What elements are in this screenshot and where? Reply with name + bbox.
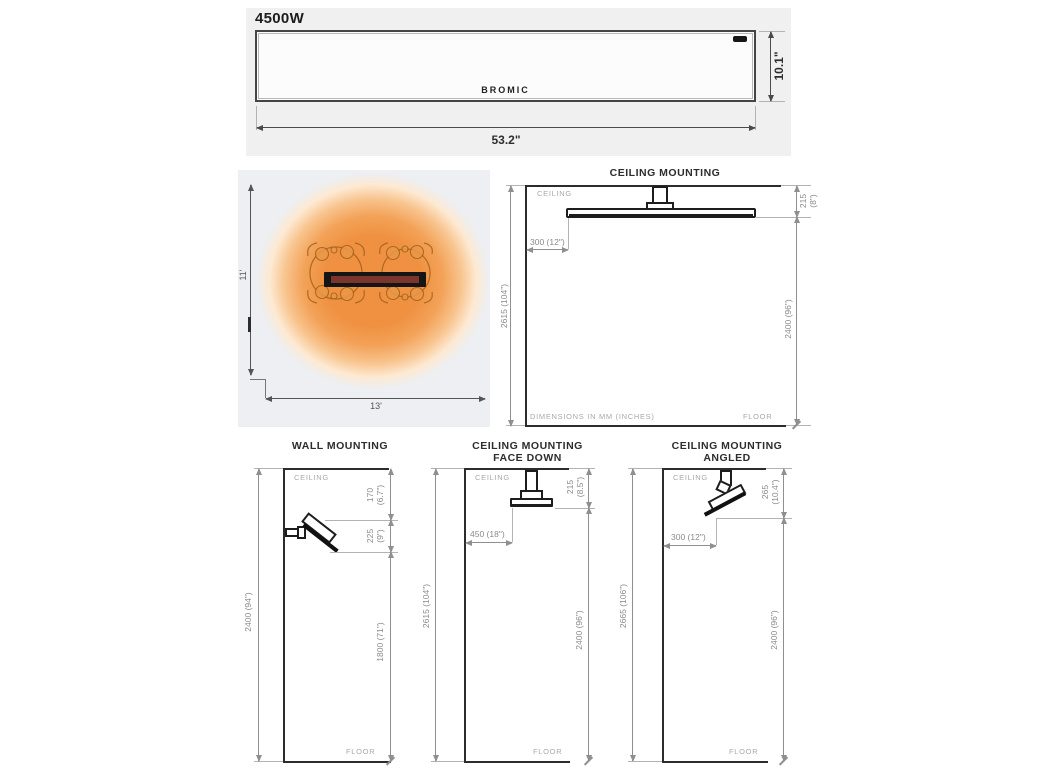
face-down-mounting-diagram: CEILING MOUNTING FACE DOWN CEILING FLOOR…	[425, 440, 630, 778]
floor-label: FLOOR	[346, 747, 375, 756]
total-height-dim	[435, 469, 436, 761]
clearance-label: 1800 (71")	[374, 607, 386, 677]
drop-label: 265 (10.4")	[761, 465, 781, 519]
total-height-label: 2615 (104")	[498, 271, 510, 341]
floor-label: FLOOR	[533, 747, 562, 756]
width-dim-label: 13'	[276, 401, 476, 411]
drop-in: (10.4")	[771, 465, 781, 519]
clearance-dim	[390, 552, 391, 761]
diagram-title-line2: ANGLED	[622, 452, 832, 464]
heater-emitter	[331, 276, 419, 283]
heater-side-view	[566, 208, 756, 218]
depth-dim-line	[250, 185, 251, 375]
drop-label: 215 (8.5")	[566, 462, 586, 512]
floor-label: FLOOR	[743, 412, 772, 421]
total-height-dim	[632, 469, 633, 761]
diagram-title: WALL MOUNTING	[230, 440, 450, 452]
wall-line	[283, 468, 285, 763]
drop-in: (8.5")	[576, 462, 586, 512]
heater-side-view	[510, 498, 553, 507]
drop-in: (9")	[376, 511, 386, 561]
ceiling-label: CEILING	[537, 189, 572, 198]
wall-line	[662, 468, 664, 763]
ceiling-mounting-diagram: CEILING MOUNTING CEILING FLOOR DIMENSION…	[500, 167, 822, 429]
total-height-label: 2400 (94")	[242, 577, 254, 647]
angled-mounting-diagram: CEILING MOUNTING ANGLED CEILING FLOOR 26…	[622, 440, 832, 778]
heat-spread-panel: 11' 13'	[238, 170, 490, 427]
brand-logo: BROMIC	[257, 85, 754, 95]
floor-line	[464, 761, 570, 763]
diagram-title-line1: CEILING MOUNTING	[425, 440, 630, 452]
drop-label: 225 (9")	[366, 511, 386, 561]
width-dim-line	[257, 127, 755, 128]
heater-top-view	[324, 272, 426, 287]
width-dim-label: 53.2"	[246, 133, 766, 147]
heater-face-line	[569, 214, 753, 216]
tick-mark	[248, 317, 251, 332]
top-offset-dim	[390, 469, 391, 520]
step-line	[250, 379, 266, 380]
wall-line	[525, 185, 527, 427]
floor-line	[525, 425, 786, 427]
drop-label: 215 (8")	[799, 176, 819, 226]
depth-dim-label: 11'	[237, 259, 249, 291]
clearance-label: 2400 (96")	[768, 595, 780, 665]
model-label: 4500W	[255, 10, 304, 27]
clearance-dim	[588, 508, 589, 761]
height-dim-label: 10.1"	[773, 31, 785, 101]
ceiling-line	[464, 468, 569, 470]
diagram-title-line1: CEILING MOUNTING	[622, 440, 832, 452]
floor-line	[662, 761, 768, 763]
floor-label: FLOOR	[729, 747, 758, 756]
diagram-title-line2: FACE DOWN	[425, 452, 630, 464]
total-height-label: 2665 (106")	[617, 571, 629, 641]
drop-dim	[796, 186, 797, 217]
offset-dim	[466, 542, 512, 543]
clearance-dim	[796, 217, 797, 425]
ceiling-label: CEILING	[673, 473, 708, 482]
offset-label: 300 (12")	[530, 237, 565, 247]
wall-line	[464, 468, 466, 763]
units-note: DIMENSIONS IN MM (INCHES)	[530, 412, 655, 421]
drop-dim	[783, 469, 784, 518]
clearance-label: 2400 (96")	[782, 284, 794, 354]
spec-sheet: 4500W BROMIC 53.2" 10.1"	[0, 0, 1037, 778]
ceiling-line	[662, 468, 766, 470]
step-line	[568, 218, 569, 249]
clearance-dim	[783, 518, 784, 761]
width-dim-line	[266, 398, 485, 399]
offset-label: 450 (18")	[470, 529, 505, 539]
height-dim-line	[770, 32, 771, 101]
floor-line	[283, 761, 391, 763]
heater-front-view: BROMIC	[255, 30, 756, 102]
clearance-label: 2400 (96")	[573, 595, 585, 665]
total-height-dim	[510, 186, 511, 426]
offset-dim	[664, 545, 716, 546]
step-line	[716, 518, 717, 545]
drop-dim	[588, 469, 589, 508]
drop-in: (8")	[809, 176, 819, 226]
diagram-title: CEILING MOUNTING	[520, 167, 810, 179]
front-view-panel: 4500W BROMIC 53.2" 10.1"	[246, 8, 791, 156]
offset-dim	[527, 249, 568, 250]
mount-pole	[525, 470, 538, 492]
ceiling-label: CEILING	[475, 473, 510, 482]
extension-line	[786, 425, 811, 426]
ceiling-label: CEILING	[294, 473, 329, 482]
step-line	[512, 508, 513, 542]
wall-mounting-diagram: WALL MOUNTING CEILING FLOOR 2400 (94") 1…	[230, 440, 440, 778]
drop-dim	[390, 520, 391, 552]
total-height-dim	[258, 469, 259, 761]
power-indicator	[733, 36, 747, 42]
offset-label: 300 (12")	[671, 532, 706, 542]
total-height-label: 2615 (104")	[420, 571, 432, 641]
